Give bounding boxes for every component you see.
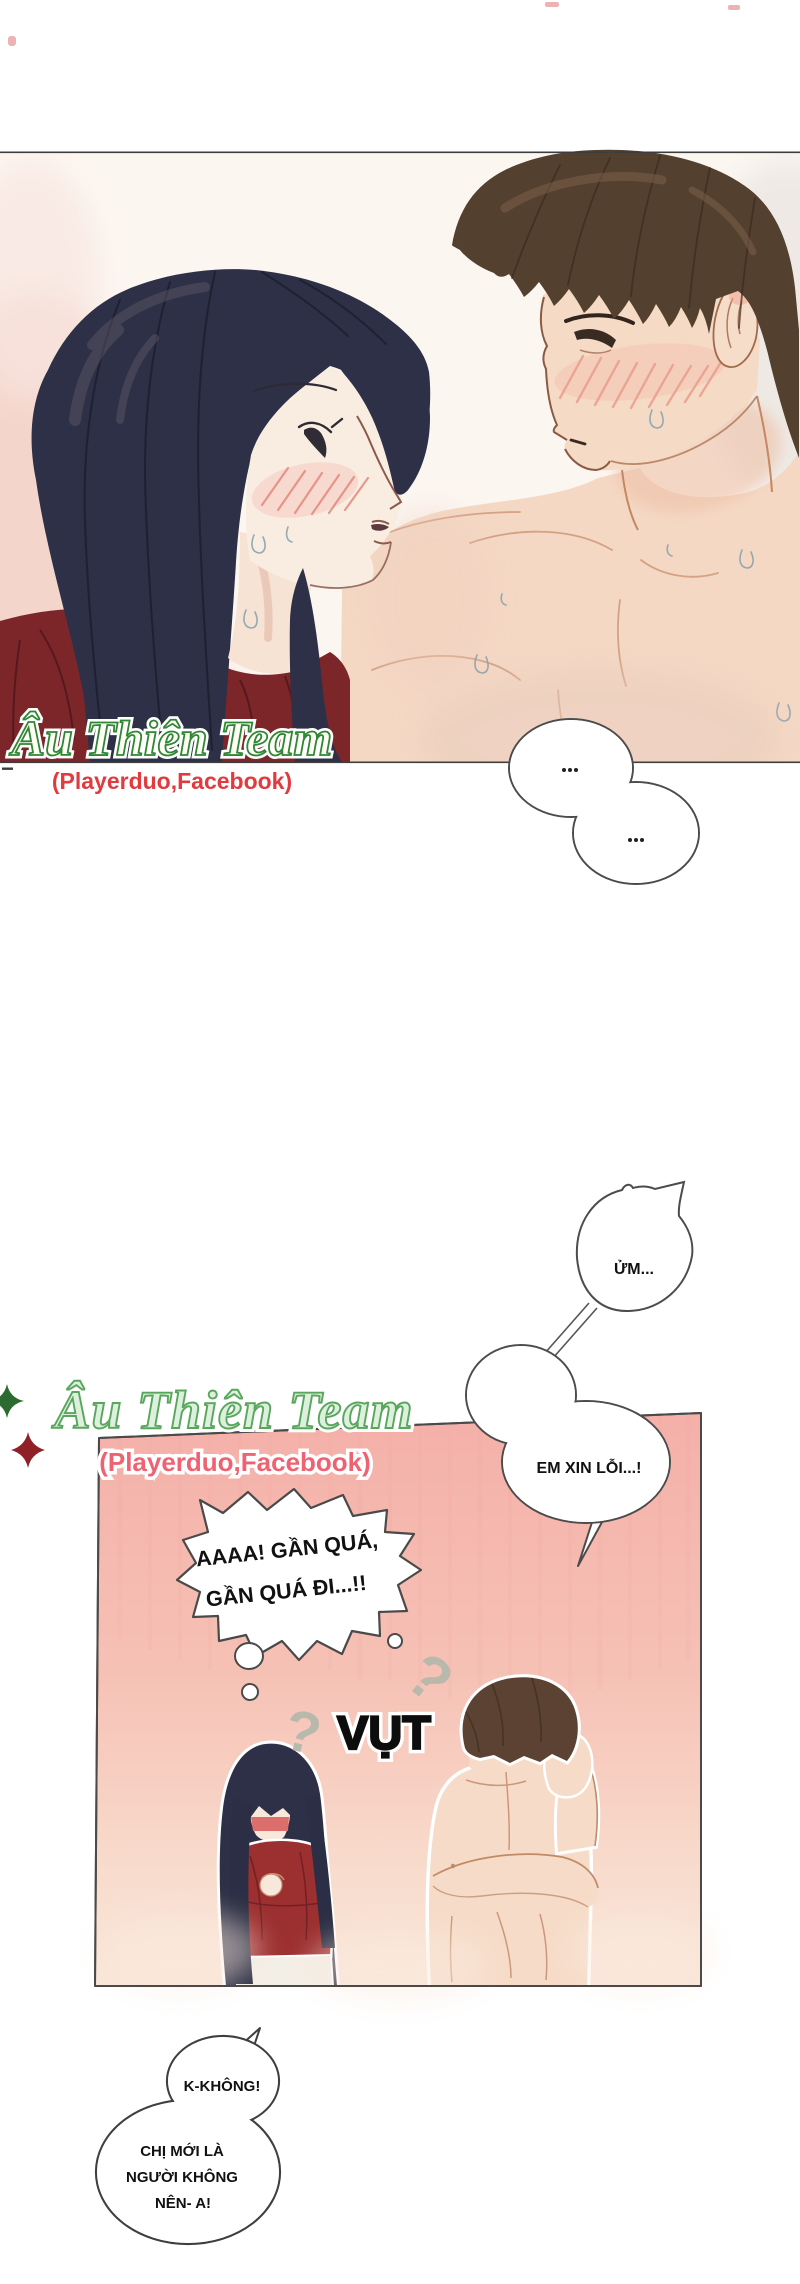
svg-text:NGƯỜI KHÔNG: NGƯỜI KHÔNG xyxy=(126,2168,238,2186)
svg-text:CHỊ MỚI LÀ: CHỊ MỚI LÀ xyxy=(140,2142,224,2160)
svg-text:NÊN- A!: NÊN- A! xyxy=(155,2194,211,2212)
svg-text:(Playerduo,Facebook): (Playerduo,Facebook) xyxy=(99,1447,371,1477)
svg-text:K-KHÔNG!: K-KHÔNG! xyxy=(184,2077,261,2095)
svg-text:Âu Thiên Team: Âu Thiên Team xyxy=(51,1380,413,1440)
svg-text:Âu Thiên Team: Âu Thiên Team xyxy=(9,710,332,766)
svg-text:VỤT: VỤT xyxy=(337,1706,431,1759)
svg-text:ỬM...: ỬM... xyxy=(614,1259,654,1278)
svg-text:EM XIN LỖI...!: EM XIN LỖI...! xyxy=(537,1458,642,1477)
svg-text:(Playerduo,Facebook): (Playerduo,Facebook) xyxy=(52,768,292,794)
